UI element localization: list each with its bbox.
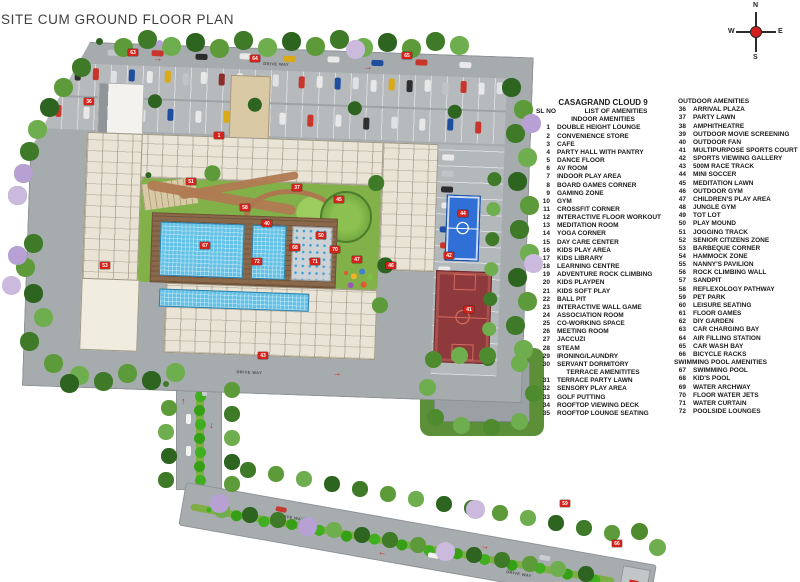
amenity-row: 26 MEETING ROOM bbox=[536, 328, 670, 336]
amenity-row: 41 MULTIPURPOSE SPORTS COURT bbox=[672, 147, 800, 155]
direction-arrow-icon: ← bbox=[377, 547, 387, 557]
amenity-row: 69 WATER ARCHWAY bbox=[672, 384, 800, 392]
amenity-number: 9 bbox=[536, 190, 550, 198]
amenity-number: 41 bbox=[672, 147, 686, 155]
amenity-row: 33 GOLF PUTTING bbox=[536, 394, 670, 402]
legend-header-row: SL NO LIST OF AMENITIES bbox=[536, 108, 670, 116]
amenity-marker: 59 bbox=[560, 500, 570, 507]
amenity-row: 36 ARRIVAL PLAZA bbox=[672, 106, 800, 114]
amenity-label: BOARD GAMES CORNER bbox=[550, 182, 636, 190]
compass-south-label: S bbox=[753, 54, 758, 61]
amenity-label: HAMMOCK ZONE bbox=[686, 253, 748, 261]
swimming-pool-amenities-heading: SWIMMING POOL AMENITIES bbox=[672, 359, 800, 367]
amenity-label: JACCUZI bbox=[550, 336, 585, 344]
amenity-number: 47 bbox=[672, 196, 686, 204]
basketball-court bbox=[433, 270, 492, 364]
indoor-amenities-list: 1 DOUBLE HEIGHT LOUNGE 2 CONVENIENCE STO… bbox=[536, 124, 670, 369]
amenity-number: 31 bbox=[536, 377, 550, 385]
amenity-row: 29 IRONING/LAUNDRY bbox=[536, 353, 670, 361]
amenity-label: MULTIPURPOSE SPORTS COURT bbox=[686, 147, 798, 155]
amenity-label: YOGA CORNER bbox=[550, 230, 606, 238]
amenity-label: 500M RACE TRACK bbox=[686, 163, 754, 171]
amenity-label: OUTDOOR MOVIE SCREENING bbox=[686, 131, 789, 139]
amenity-label: STEAM bbox=[550, 345, 580, 353]
amenity-row: 62 DIY GARDEN bbox=[672, 318, 800, 326]
amenity-row: 20 KIDS PLAYPEN bbox=[536, 279, 670, 287]
amenity-label: ROCK CLIMBING WALL bbox=[686, 269, 766, 277]
amenity-row: 55 NANNY'S PAVILION bbox=[672, 261, 800, 269]
indoor-amenities-heading: INDOOR AMENITIES bbox=[536, 116, 670, 124]
amenity-row: 9 GAMING ZONE bbox=[536, 190, 670, 198]
amenity-label: SENSORY PLAY AREA bbox=[550, 385, 627, 393]
compass-north-label: N bbox=[753, 2, 758, 9]
amenity-number: 19 bbox=[536, 271, 550, 279]
amenity-row: 19 ADVENTURE ROCK CLIMBING bbox=[536, 271, 670, 279]
amenity-label: IRONING/LAUNDRY bbox=[550, 353, 618, 361]
road-median bbox=[190, 503, 615, 582]
amenity-number: 68 bbox=[672, 375, 686, 383]
amenity-number: 24 bbox=[536, 312, 550, 320]
list-of-amenities-header: LIST OF AMENITIES bbox=[562, 108, 670, 116]
amenity-row: 31 TERRACE PARTY LAWN bbox=[536, 377, 670, 385]
amenity-label: CROSSFIT CORNER bbox=[550, 206, 620, 214]
amenity-row: 50 PLAY MOUND bbox=[672, 220, 800, 228]
amenity-row: 4 PARTY HALL WITH PANTRY bbox=[536, 149, 670, 157]
building-wing-east bbox=[378, 142, 438, 272]
car-icon bbox=[275, 506, 287, 513]
legend-column-indoor: CASAGRAND CLOUD 9 SL NO LIST OF AMENITIE… bbox=[536, 98, 670, 418]
amenity-number: 25 bbox=[536, 320, 550, 328]
amenity-number: 40 bbox=[672, 139, 686, 147]
amenity-number: 33 bbox=[536, 394, 550, 402]
amenity-number: 21 bbox=[536, 288, 550, 296]
amenity-row: 30 SERVANT DORMITORY bbox=[536, 361, 670, 369]
amenity-label: KIDS LIBRARY bbox=[550, 255, 603, 263]
amenity-row: 40 OUTDOOR FAN bbox=[672, 139, 800, 147]
amenity-row: 60 LEISURE SEATING bbox=[672, 302, 800, 310]
amenity-row: 61 FLOOR GAMES bbox=[672, 310, 800, 318]
amenity-row: 72 POOLSIDE LOUNGES bbox=[672, 408, 800, 416]
direction-arrow-icon: → bbox=[332, 369, 341, 378]
amenity-number: 5 bbox=[536, 157, 550, 165]
amenity-label: KID'S POOL bbox=[686, 375, 730, 383]
amenity-number: 36 bbox=[672, 106, 686, 114]
amenity-row: 11 CROSSFIT CORNER bbox=[536, 206, 670, 214]
flowering-tree-cluster bbox=[156, 40, 163, 47]
amenity-row: 70 FLOOR WATER JETS bbox=[672, 392, 800, 400]
amenity-number: 56 bbox=[672, 269, 686, 277]
amenity-number: 17 bbox=[536, 255, 550, 263]
amenity-label: WATER ARCHWAY bbox=[686, 384, 751, 392]
tree-cluster-roadside bbox=[163, 381, 169, 387]
amenity-row: 59 PET PARK bbox=[672, 294, 800, 302]
amenity-number: 23 bbox=[536, 304, 550, 312]
entrance-gate bbox=[617, 565, 651, 582]
amenity-number: 57 bbox=[672, 277, 686, 285]
amenity-number: 45 bbox=[672, 180, 686, 188]
amenity-label: LEARNING CENTRE bbox=[550, 263, 619, 271]
direction-arrow-icon: ↓ bbox=[209, 421, 214, 430]
amenity-label: OUTDOOR FAN bbox=[686, 139, 741, 147]
amenity-number: 15 bbox=[536, 239, 550, 247]
compass-west-label: W bbox=[728, 28, 735, 35]
drive-way-label: DRIVE WAY bbox=[236, 369, 262, 375]
amenity-row: 16 KIDS PLAY AREA bbox=[536, 247, 670, 255]
terrace-amenities-heading: TERRACE AMENITITES bbox=[536, 369, 670, 377]
amenity-number: 27 bbox=[536, 336, 550, 344]
swimming-pool bbox=[159, 222, 245, 279]
amenity-number: 39 bbox=[672, 131, 686, 139]
amenity-label: SANDPIT bbox=[686, 277, 722, 285]
amenity-label: ROOFTOP LOUNGE SEATING bbox=[550, 410, 649, 418]
amenity-label: ARRIVAL PLAZA bbox=[686, 106, 745, 114]
amenity-number: 18 bbox=[536, 263, 550, 271]
amenity-number: 70 bbox=[672, 392, 686, 400]
amenity-row: 18 LEARNING CENTRE bbox=[536, 263, 670, 271]
amenity-row: 12 INTERACTIVE FLOOR WORKOUT bbox=[536, 214, 670, 222]
amenity-number: 43 bbox=[672, 163, 686, 171]
amenity-label: GAMING ZONE bbox=[550, 190, 604, 198]
amenity-row: 6 AV ROOM bbox=[536, 165, 670, 173]
amenity-row: 7 INDOOR PLAY AREA bbox=[536, 173, 670, 181]
amenity-number: 63 bbox=[672, 326, 686, 334]
amenity-row: 63 CAR CHARGING BAY bbox=[672, 326, 800, 334]
amenity-number: 72 bbox=[672, 408, 686, 416]
drive-way-label: DRIVE WAY bbox=[263, 61, 289, 67]
terrace-amenities-list: 31 TERRACE PARTY LAWN 32 SENSORY PLAY AR… bbox=[536, 377, 670, 418]
amenity-row: 23 INTERACTIVE WALL GAME bbox=[536, 304, 670, 312]
amenity-row: 67 SWIMMING POOL bbox=[672, 367, 800, 375]
amenity-row: 42 SPORTS VIEWING GALLERY bbox=[672, 155, 800, 163]
amenity-number: 12 bbox=[536, 214, 550, 222]
outdoor-amenities-list: 36 ARRIVAL PLAZA 37 PARTY LAWN 38 AMPHIT… bbox=[672, 106, 800, 359]
amenity-label: CAR CHARGING BAY bbox=[686, 326, 759, 334]
amenity-marker: 66 bbox=[612, 540, 622, 547]
amenity-label: CAFE bbox=[550, 141, 575, 149]
amenity-number: 16 bbox=[536, 247, 550, 255]
amenity-row: 37 PARTY LAWN bbox=[672, 114, 800, 122]
amenity-label: TOT LOT bbox=[686, 212, 721, 220]
amenity-row: 48 JUNGLE GYM bbox=[672, 204, 800, 212]
amenity-row: 32 SENSORY PLAY AREA bbox=[536, 385, 670, 393]
amenity-row: 22 BALL PIT bbox=[536, 296, 670, 304]
amenity-number: 50 bbox=[672, 220, 686, 228]
amenity-number: 60 bbox=[672, 302, 686, 310]
amenity-number: 55 bbox=[672, 261, 686, 269]
amenity-number: 34 bbox=[536, 402, 550, 410]
amenity-row: 45 MEDITATION LAWN bbox=[672, 180, 800, 188]
mini-soccer-court bbox=[445, 195, 481, 262]
amenity-row: 15 DAY CARE CENTER bbox=[536, 239, 670, 247]
amenity-label: OUTDOOR GYM bbox=[686, 188, 743, 196]
amenity-label: AIR FILLING STATION bbox=[686, 335, 761, 343]
amenity-row: 34 ROOFTOP VIEWING DECK bbox=[536, 402, 670, 410]
amenity-row: 27 JACCUZI bbox=[536, 336, 670, 344]
amenity-label: ROOFTOP VIEWING DECK bbox=[550, 402, 639, 410]
parked-cars bbox=[64, 47, 76, 53]
building-complex: DRIVE WAY → → DRIVE WAY ← bbox=[22, 40, 534, 403]
amenity-label: CAR WASH BAY bbox=[686, 343, 743, 351]
amenity-row: 51 JOGGING TRACK bbox=[672, 229, 800, 237]
amenity-row: 3 CAFE bbox=[536, 141, 670, 149]
amenity-number: 4 bbox=[536, 149, 550, 157]
poolside-lounge-pad bbox=[291, 226, 333, 281]
amenity-number: 35 bbox=[536, 410, 550, 418]
amenity-row: 25 CO-WORKING SPACE bbox=[536, 320, 670, 328]
amenity-label: NANNY'S PAVILION bbox=[686, 261, 754, 269]
amenity-number: 7 bbox=[536, 173, 550, 181]
amenity-label: SPORTS VIEWING GALLERY bbox=[686, 155, 782, 163]
amenity-number: 67 bbox=[672, 367, 686, 375]
amenity-number: 37 bbox=[672, 114, 686, 122]
compass-rose-icon: N S E W bbox=[728, 4, 784, 60]
amenity-number: 61 bbox=[672, 310, 686, 318]
amenity-number: 11 bbox=[536, 206, 550, 214]
amenity-row: 65 CAR WASH BAY bbox=[672, 343, 800, 351]
parked-cars bbox=[57, 67, 63, 79]
amenity-label: MEETING ROOM bbox=[550, 328, 609, 336]
direction-arrow-icon: → bbox=[153, 54, 162, 63]
amenity-row: 46 OUTDOOR GYM bbox=[672, 188, 800, 196]
amenity-number: 10 bbox=[536, 198, 550, 206]
amenity-label: CHILDREN'S PLAY AREA bbox=[686, 196, 771, 204]
amenity-number: 6 bbox=[536, 165, 550, 173]
amenity-row: 58 REFLEXOLOGY PATHWAY bbox=[672, 286, 800, 294]
amenity-row: 49 TOT LOT bbox=[672, 212, 800, 220]
amenity-label: CO-WORKING SPACE bbox=[550, 320, 625, 328]
amenity-row: 53 BARBEQUE CORNER bbox=[672, 245, 800, 253]
compass-east-label: E bbox=[778, 28, 783, 35]
amenity-number: 52 bbox=[672, 237, 686, 245]
direction-arrow-icon: ↑ bbox=[181, 397, 186, 406]
pool-deck bbox=[150, 212, 338, 288]
amenity-number: 71 bbox=[672, 400, 686, 408]
amenity-label: INTERACTIVE FLOOR WORKOUT bbox=[550, 214, 661, 222]
amenity-number: 44 bbox=[672, 171, 686, 179]
amenity-label: KIDS SOFT PLAY bbox=[550, 288, 610, 296]
amenity-number: 26 bbox=[536, 328, 550, 336]
amenity-label: INDOOR PLAY AREA bbox=[550, 173, 621, 181]
amenity-number: 32 bbox=[536, 385, 550, 393]
amenity-label: DOUBLE HEIGHT LOUNGE bbox=[550, 124, 640, 132]
drive-way-label: DRIVE WAY bbox=[506, 569, 532, 578]
amenity-row: 21 KIDS SOFT PLAY bbox=[536, 288, 670, 296]
amenity-label: BARBEQUE CORNER bbox=[686, 245, 760, 253]
amenity-label: PLAY MOUND bbox=[686, 220, 736, 228]
amenity-number: 1 bbox=[536, 124, 550, 132]
amenity-number: 69 bbox=[672, 384, 686, 392]
amenity-row: 14 YOGA CORNER bbox=[536, 230, 670, 238]
direction-arrow-icon: → bbox=[363, 63, 372, 72]
amenity-number: 28 bbox=[536, 345, 550, 353]
amenity-label: JOGGING TRACK bbox=[686, 229, 748, 237]
amenity-label: CONVENIENCE STORE bbox=[550, 133, 629, 141]
amenity-label: FLOOR WATER JETS bbox=[686, 392, 759, 400]
amenity-label: DANCE FLOOR bbox=[550, 157, 605, 165]
amenity-label: PET PARK bbox=[686, 294, 725, 302]
parked-cars bbox=[442, 154, 454, 160]
amenity-label: JUNGLE GYM bbox=[686, 204, 736, 212]
amenity-number: 8 bbox=[536, 182, 550, 190]
amenity-label: MEDITATION LAWN bbox=[686, 180, 753, 188]
car-icon bbox=[186, 414, 191, 424]
amenity-label: MINI SOCCER bbox=[686, 171, 736, 179]
amenity-label: SWIMMING POOL bbox=[686, 367, 748, 375]
amenity-number: 66 bbox=[672, 351, 686, 359]
amenity-row: 57 SANDPIT bbox=[672, 277, 800, 285]
amenity-label: FLOOR GAMES bbox=[686, 310, 741, 318]
amenity-row: 56 ROCK CLIMBING WALL bbox=[672, 269, 800, 277]
amenity-number: 14 bbox=[536, 230, 550, 238]
outdoor-amenities-heading: OUTDOOR AMENITIES bbox=[672, 98, 800, 106]
sl-no-header: SL NO bbox=[536, 108, 562, 116]
amenity-number: 49 bbox=[672, 212, 686, 220]
amenity-label: DAY CARE CENTER bbox=[550, 239, 619, 247]
page-title: SITE CUM GROUND FLOOR PLAN bbox=[1, 12, 234, 27]
amenity-number: 3 bbox=[536, 141, 550, 149]
tree-cluster-perimeter bbox=[96, 38, 103, 45]
amenity-row: 66 BICYCLE RACKS bbox=[672, 351, 800, 359]
amenity-number: 51 bbox=[672, 229, 686, 237]
amenity-row: 13 MEDITATION ROOM bbox=[536, 222, 670, 230]
amenity-number: 62 bbox=[672, 318, 686, 326]
amenity-row: 52 SENIOR CITIZENS ZONE bbox=[672, 237, 800, 245]
amenity-row: 1 DOUBLE HEIGHT LOUNGE bbox=[536, 124, 670, 132]
amenity-number: 2 bbox=[536, 133, 550, 141]
amenity-row: 35 ROOFTOP LOUNGE SEATING bbox=[536, 410, 670, 418]
amenity-row: 5 DANCE FLOOR bbox=[536, 157, 670, 165]
amenity-label: KIDS PLAYPEN bbox=[550, 279, 604, 287]
amenity-label: PARTY LAWN bbox=[686, 114, 735, 122]
amenity-number: 38 bbox=[672, 123, 686, 131]
amenity-number: 46 bbox=[672, 188, 686, 196]
amenity-row: 10 GYM bbox=[536, 198, 670, 206]
amenity-row: 47 CHILDREN'S PLAY AREA bbox=[672, 196, 800, 204]
amenity-row: 28 STEAM bbox=[536, 345, 670, 353]
amenity-label: AV ROOM bbox=[550, 165, 588, 173]
amenity-row: 68 KID'S POOL bbox=[672, 375, 800, 383]
amenity-row: 17 KIDS LIBRARY bbox=[536, 255, 670, 263]
amenity-row: 39 OUTDOOR MOVIE SCREENING bbox=[672, 131, 800, 139]
amenity-number: 42 bbox=[672, 155, 686, 163]
amenity-number: 48 bbox=[672, 204, 686, 212]
amenity-label: REFLEXOLOGY PATHWAY bbox=[686, 286, 775, 294]
amenity-number: 54 bbox=[672, 253, 686, 261]
amenity-label: ADVENTURE ROCK CLIMBING bbox=[550, 271, 652, 279]
compass-center-dot bbox=[750, 26, 762, 38]
amenity-label: SENIOR CITIZENS ZONE bbox=[686, 237, 769, 245]
amenity-label: SERVANT DORMITORY bbox=[550, 361, 629, 369]
swimming-pool-amenities-list: 67 SWIMMING POOL 68 KID'S POOL 69 WATER … bbox=[672, 367, 800, 416]
amenity-label: AMPHITHEATRE bbox=[686, 123, 744, 131]
main-drive-way: DRIVE WAY DRIVE WAY → ← bbox=[178, 482, 656, 582]
amenity-number: 59 bbox=[672, 294, 686, 302]
amenity-row: 2 CONVENIENCE STORE bbox=[536, 133, 670, 141]
amenity-row: 24 ASSOCIATION ROOM bbox=[536, 312, 670, 320]
amenity-number: 65 bbox=[672, 343, 686, 351]
amenity-row: 8 BOARD GAMES CORNER bbox=[536, 182, 670, 190]
amenity-label: GOLF PUTTING bbox=[550, 394, 605, 402]
direction-arrow-icon: → bbox=[480, 541, 490, 551]
amenity-number: 30 bbox=[536, 361, 550, 369]
amenity-number: 64 bbox=[672, 335, 686, 343]
amenity-label: LEISURE SEATING bbox=[686, 302, 751, 310]
amenity-label: PARTY HALL WITH PANTRY bbox=[550, 149, 644, 157]
amenity-label: WATER CURTAIN bbox=[686, 400, 747, 408]
amenity-label: TERRACE PARTY LAWN bbox=[550, 377, 633, 385]
amenity-label: MEDITATION ROOM bbox=[550, 222, 619, 230]
amenity-number: 53 bbox=[672, 245, 686, 253]
amenity-label: BICYCLE RACKS bbox=[686, 351, 746, 359]
amenity-label: INTERACTIVE WALL GAME bbox=[550, 304, 642, 312]
amenity-label: ASSOCIATION ROOM bbox=[550, 312, 624, 320]
amenity-row: 54 HAMMOCK ZONE bbox=[672, 253, 800, 261]
legend-column-outdoor: OUTDOOR AMENITIES 36 ARRIVAL PLAZA 37 PA… bbox=[672, 98, 800, 416]
amenity-label: POOLSIDE LOUNGES bbox=[686, 408, 761, 416]
central-foyer-block bbox=[229, 75, 271, 140]
direction-arrow-icon: ← bbox=[173, 361, 182, 370]
amenity-row: 43 500M RACE TRACK bbox=[672, 163, 800, 171]
project-title: CASAGRAND CLOUD 9 bbox=[536, 98, 670, 107]
amenity-row: 44 MINI SOCCER bbox=[672, 171, 800, 179]
amenity-row: 38 AMPHITHEATRE bbox=[672, 123, 800, 131]
kids-pool bbox=[251, 225, 287, 280]
amenity-row: 71 WATER CURTAIN bbox=[672, 400, 800, 408]
amenity-number: 22 bbox=[536, 296, 550, 304]
clubhouse-block bbox=[79, 278, 139, 352]
amenity-label: DIY GARDEN bbox=[686, 318, 734, 326]
amenity-number: 20 bbox=[536, 279, 550, 287]
amenity-number: 58 bbox=[672, 286, 686, 294]
amenity-number: 29 bbox=[536, 353, 550, 361]
amenity-label: BALL PIT bbox=[550, 296, 586, 304]
site-plan-page: ↑ ↓ DRIVE WAY DRIVE WAY → ← SUBSTATION D… bbox=[0, 0, 800, 582]
amenity-row: 64 AIR FILLING STATION bbox=[672, 335, 800, 343]
amenity-label: KIDS PLAY AREA bbox=[550, 247, 611, 255]
amenity-number: 13 bbox=[536, 222, 550, 230]
amenity-label: GYM bbox=[550, 198, 572, 206]
